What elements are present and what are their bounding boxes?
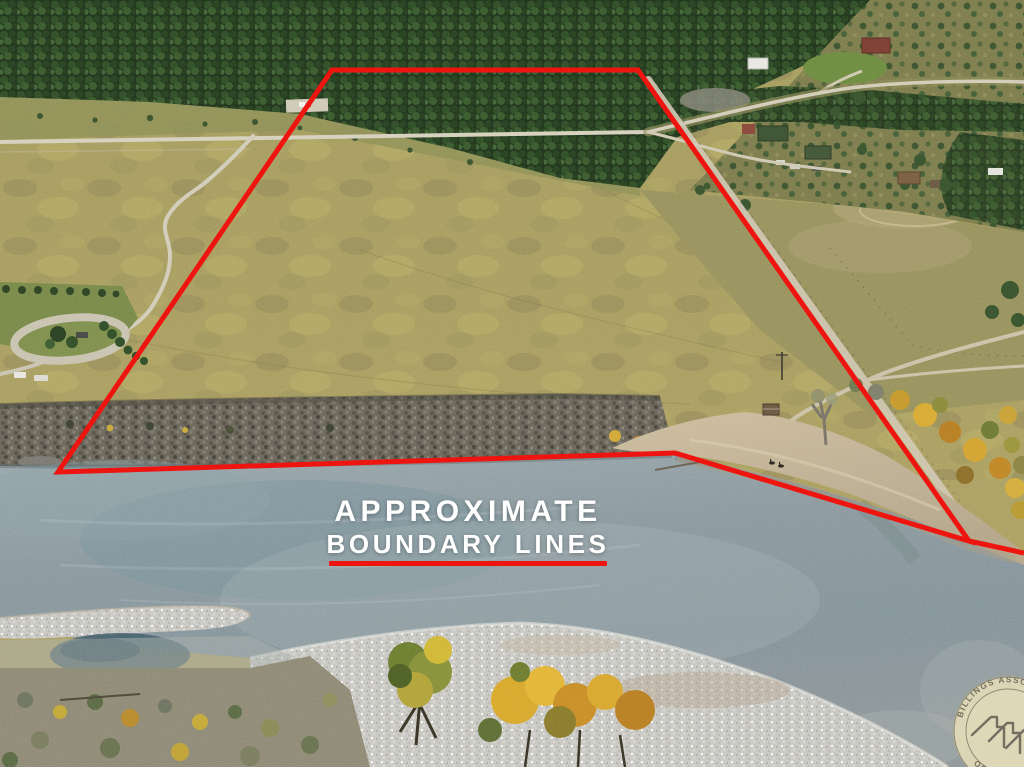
annotation-underline bbox=[329, 561, 607, 566]
property-aerial-photo: BILLINGS ASSOCIATION OF REALTORS APPROXI… bbox=[0, 0, 1024, 767]
aerial-photo-scene: BILLINGS ASSOCIATION OF REALTORS bbox=[0, 0, 1024, 767]
annotation-line-2: BOUNDARY LINES bbox=[323, 531, 613, 557]
annotation-line-1: APPROXIMATE bbox=[323, 497, 613, 527]
photo-grain-overlay bbox=[0, 0, 1024, 767]
boundary-annotation: APPROXIMATE BOUNDARY LINES bbox=[323, 497, 613, 572]
